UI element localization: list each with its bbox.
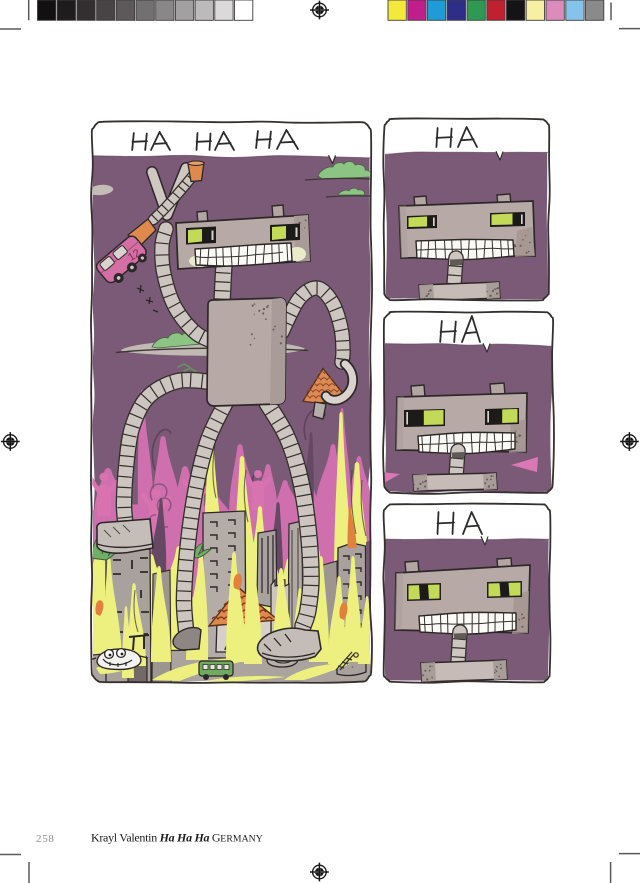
svg-text:Krayl Valentin Ha Ha Ha GERMAN: Krayl Valentin Ha Ha Ha GERMANY xyxy=(91,830,263,844)
svg-text:258: 258 xyxy=(36,833,55,845)
